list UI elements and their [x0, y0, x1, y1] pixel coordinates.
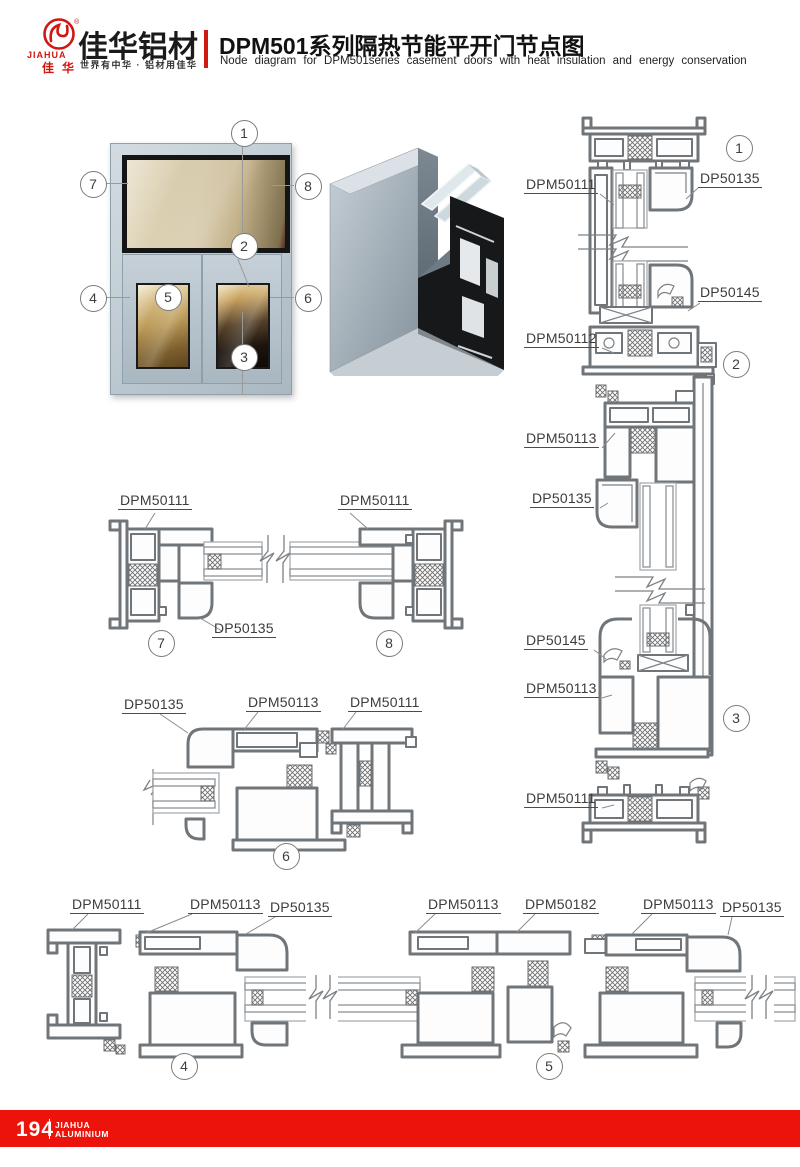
part-label: DPM50111 [524, 176, 598, 194]
callout-line [242, 145, 243, 233]
part-label: DP50135 [122, 696, 186, 714]
logo-brand-cn: 佳华 [42, 59, 82, 76]
part-label: DP50135 [212, 620, 276, 638]
photo-callout-8: 8 [295, 173, 322, 200]
part-label: DPM50113 [641, 896, 716, 914]
photo-callout-2: 2 [231, 233, 258, 260]
photo-callout-6: 6 [295, 285, 322, 312]
catalog-page: ® JIAHUA 佳华 佳华铝材 世界有中华 · 铝材用佳华 DPM501系列隔… [0, 0, 800, 1167]
part-label: DPM50111 [348, 694, 422, 712]
part-label: DPM50111 [524, 790, 598, 808]
part-label: DPM50111 [118, 492, 192, 510]
part-label: DPM50113 [188, 896, 263, 914]
part-label: DP50135 [530, 490, 594, 508]
photo-callout-3: 3 [231, 344, 258, 371]
part-label: DP50135 [268, 899, 332, 917]
transom-glass [122, 155, 290, 253]
callout-line [242, 369, 243, 395]
footer-brand-line2: ALUMINIUM [55, 1130, 109, 1139]
photo-callout-7: 7 [80, 171, 107, 198]
part-label: DP50145 [698, 284, 762, 302]
callout-line [105, 297, 130, 298]
photo-callout-1: 1 [231, 120, 258, 147]
profile-3d-render [322, 138, 507, 383]
vertical-section-drawing [520, 115, 780, 845]
callout-line [242, 312, 243, 344]
photo-callout-4: 4 [80, 285, 107, 312]
part-label: DPM50111 [338, 492, 412, 510]
part-label: DPM50113 [524, 430, 599, 448]
part-label: DPM50111 [70, 896, 144, 914]
section-callout-8: 8 [376, 630, 403, 657]
section-callout-6: 6 [273, 843, 300, 870]
part-label: DPM50113 [426, 896, 501, 914]
part-label: DPM50112 [524, 330, 599, 348]
part-label: DP50135 [720, 899, 784, 917]
photo-callout-5: 5 [155, 284, 182, 311]
window-photo [110, 143, 292, 395]
door-leaf-left [122, 254, 202, 384]
part-label: DPM50182 [523, 896, 599, 914]
section-callout-2: 2 [723, 351, 750, 378]
page-subtitle: Node diagram for DPM501series casement d… [220, 55, 786, 67]
footer-separator [49, 1119, 50, 1139]
section-callout-1: 1 [726, 135, 753, 162]
header-divider [204, 30, 208, 68]
footer-bar [0, 1110, 800, 1147]
footer-brand: JIAHUA ALUMINIUM [55, 1121, 109, 1139]
part-label: DPM50113 [524, 680, 599, 698]
section-callout-7: 7 [148, 630, 175, 657]
section-callout-4: 4 [171, 1053, 198, 1080]
company-slogan: 世界有中华 · 铝材用佳华 [80, 58, 198, 71]
section-callout-3: 3 [723, 705, 750, 732]
section-callout-5: 5 [536, 1053, 563, 1080]
part-label: DP50145 [524, 632, 588, 650]
jiahua-logo-icon: ® [40, 16, 80, 54]
callout-line [105, 183, 128, 184]
part-label: DP50135 [698, 170, 762, 188]
part-label: DPM50113 [246, 694, 321, 712]
callout-line [272, 185, 294, 186]
callout-line [270, 297, 294, 298]
bottom-section-drawing [40, 895, 800, 1080]
